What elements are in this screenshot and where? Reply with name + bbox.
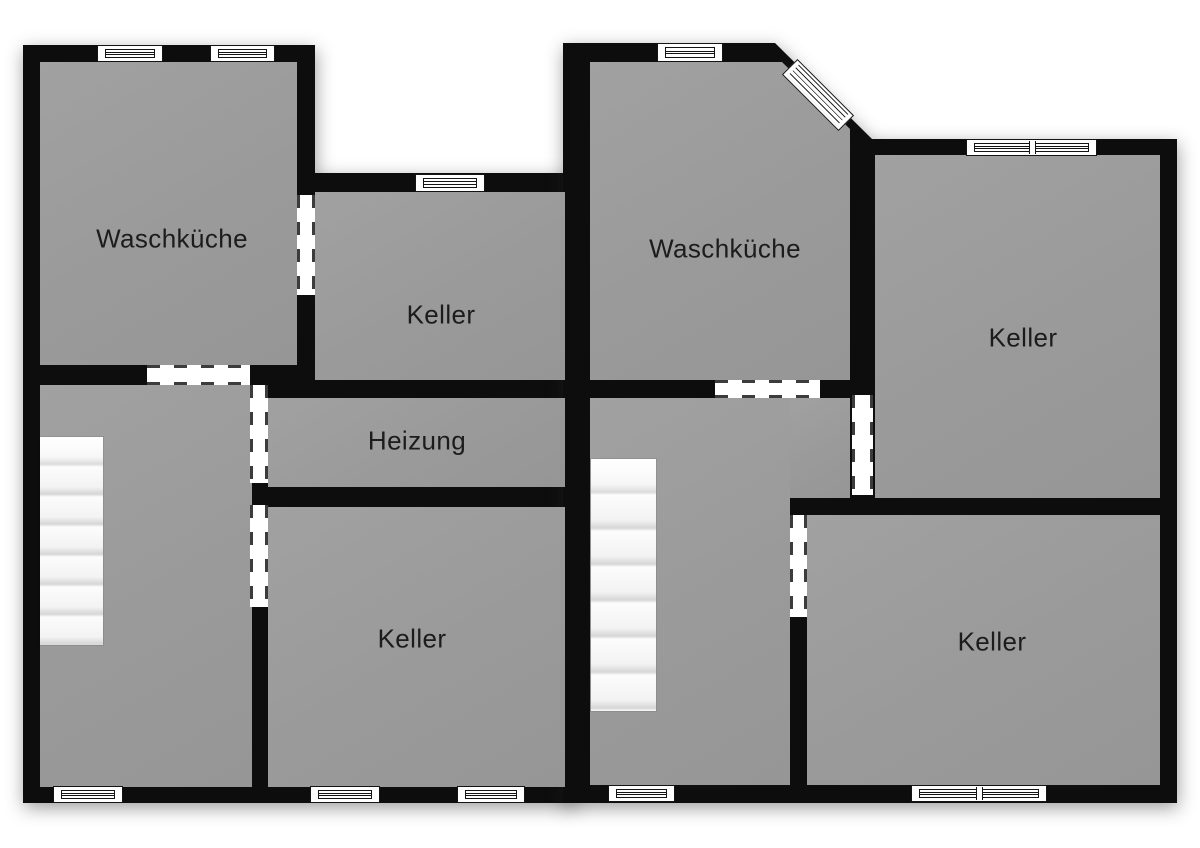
window-double [911, 785, 1047, 802]
room-label-waschkueche-left: Waschküche [96, 224, 248, 255]
window [457, 786, 525, 803]
door-waschkueche-left-to-keller [297, 195, 315, 295]
room-label-keller-top-middle: Keller [407, 300, 476, 331]
room-keller-top-middle-floor [315, 192, 565, 380]
window [310, 786, 380, 803]
window-glass [61, 790, 115, 799]
window [608, 785, 675, 802]
door-waschkueche-left-to-hallway [147, 365, 250, 385]
room-waschkueche-left-floor [40, 62, 297, 365]
room-waschkueche-right-floor [590, 62, 850, 380]
room-label-keller-bottom-left: Keller [378, 624, 447, 655]
door-hallway-to-keller-bottom-right [790, 515, 807, 617]
hallway-right-upper-floor [790, 398, 850, 498]
window-glass [665, 47, 715, 58]
window-double [966, 139, 1097, 156]
window [415, 174, 485, 192]
window [657, 43, 723, 62]
floor-plan-canvas: Waschküche Keller Heizung Keller Waschkü… [0, 0, 1200, 848]
window-glass [218, 49, 267, 58]
window-glass [919, 789, 1039, 798]
window [210, 45, 275, 62]
room-label-keller-bottom-right: Keller [958, 627, 1027, 658]
room-label-heizung: Heizung [368, 426, 466, 457]
window-glass [318, 790, 372, 799]
window [97, 45, 163, 62]
window-glass [105, 49, 155, 58]
stairs-left [40, 437, 103, 645]
door-hallway-to-heizung [250, 385, 268, 483]
room-label-waschkueche-right: Waschküche [649, 234, 801, 265]
window-glass [465, 790, 517, 799]
door-waschkueche-right-to-hallway [715, 380, 820, 398]
window-glass [616, 789, 667, 798]
window [53, 786, 123, 803]
room-label-keller-top-right: Keller [989, 323, 1058, 354]
door-hallway-to-keller-top-right [852, 395, 873, 495]
stairs-right [591, 459, 656, 711]
door-hallway-to-keller-bottom-left [250, 505, 268, 607]
window-glass [974, 143, 1089, 152]
window-glass [423, 178, 477, 188]
